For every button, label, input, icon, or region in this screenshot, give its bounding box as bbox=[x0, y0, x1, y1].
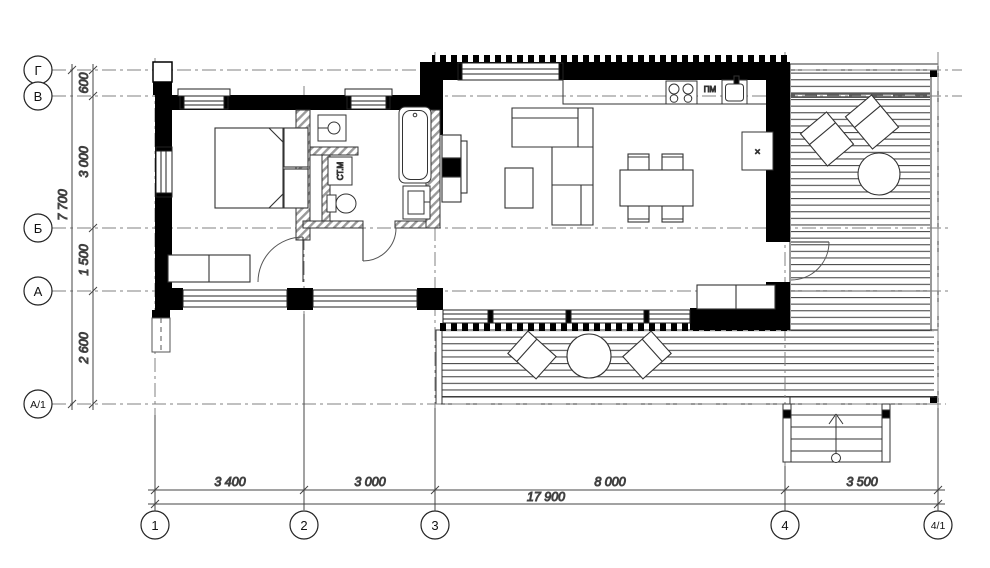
bedroom-furniture bbox=[168, 128, 308, 282]
round-table bbox=[567, 334, 611, 378]
dim-3000-bottom: 3 000 bbox=[354, 475, 385, 489]
dim-3500: 3 500 bbox=[846, 475, 877, 489]
bathroom-fixtures: СТ.М bbox=[318, 107, 431, 219]
column-base bbox=[152, 310, 170, 352]
glazing-south-living bbox=[443, 310, 690, 323]
dimensions-left: 600 3 000 1 500 2 600 7 700 bbox=[56, 64, 97, 410]
axis-label-a1: А/1 bbox=[30, 399, 46, 411]
dim-8000: 8 000 bbox=[594, 475, 625, 489]
tv-unit bbox=[442, 135, 467, 202]
partition-bath-bottom-left bbox=[303, 221, 363, 228]
axis-label-a: А bbox=[34, 284, 43, 299]
dishwasher-label: ПМ bbox=[704, 85, 717, 94]
dim-1500: 1 500 bbox=[77, 244, 91, 275]
wall-pier-axis2 bbox=[287, 288, 313, 310]
doors bbox=[258, 228, 829, 282]
shower-tray bbox=[403, 186, 430, 219]
toilet bbox=[327, 194, 356, 213]
fridge-mark: × bbox=[755, 147, 761, 158]
nightstand bbox=[284, 128, 308, 167]
living-furniture bbox=[442, 108, 775, 309]
dim-2600: 2 600 bbox=[77, 332, 91, 364]
dining-set bbox=[620, 154, 693, 222]
axis-label-3: 3 bbox=[431, 518, 438, 533]
dim-3000-left: 3 000 bbox=[77, 146, 91, 177]
dim-17900: 17 900 bbox=[527, 490, 565, 504]
round-table bbox=[858, 153, 900, 195]
dim-3400: 3 400 bbox=[214, 475, 245, 489]
bottom-deck bbox=[436, 330, 938, 404]
axis-markers-bottom: 1 2 3 4 4/1 bbox=[141, 511, 952, 539]
dim-600: 600 bbox=[77, 73, 91, 94]
window-bedroom-north-1 bbox=[180, 96, 228, 109]
stairs bbox=[783, 404, 890, 463]
axis-label-g: Г bbox=[34, 63, 41, 78]
washing-machine: СТ.М bbox=[328, 157, 352, 185]
kitchen-sink bbox=[722, 76, 747, 104]
door-bathroom bbox=[363, 228, 396, 261]
floor-plan-drawing: СТ.М ПМ × bbox=[0, 0, 990, 568]
partition-bath-top bbox=[310, 147, 358, 155]
window-sill bbox=[178, 89, 230, 96]
axis-label-v: В bbox=[34, 89, 43, 104]
axis-label-2: 2 bbox=[300, 518, 307, 533]
bathtub bbox=[399, 107, 431, 183]
coffee-table bbox=[505, 168, 533, 208]
fridge: × bbox=[742, 132, 773, 170]
dim-7700: 7 700 bbox=[56, 189, 70, 220]
axis-label-b: Б bbox=[34, 221, 43, 236]
axis-markers-left: Г В Б А А/1 bbox=[24, 56, 52, 418]
floor-plan-canvas: СТ.М ПМ × bbox=[0, 0, 990, 568]
stove-icon bbox=[666, 81, 697, 104]
wall-pier-axis3 bbox=[417, 288, 443, 310]
window-living-north bbox=[458, 63, 563, 80]
window-sill bbox=[345, 89, 392, 96]
axis-label-41: 4/1 bbox=[931, 520, 946, 532]
dining-table bbox=[620, 170, 693, 206]
cladding-ticks-bottom bbox=[436, 323, 790, 331]
chimney bbox=[153, 62, 172, 95]
window-bedroom-north-2 bbox=[347, 96, 390, 109]
nightstand bbox=[284, 169, 308, 208]
window-bedroom-west bbox=[156, 147, 172, 197]
deck-post bbox=[930, 70, 937, 77]
cladding-ticks-top bbox=[432, 55, 788, 62]
axis-label-4: 4 bbox=[781, 518, 788, 533]
axis-label-1: 1 bbox=[151, 518, 158, 533]
sideboard-bench bbox=[697, 285, 775, 309]
washbasin bbox=[318, 115, 346, 141]
door-bedroom bbox=[258, 237, 303, 282]
dresser bbox=[168, 255, 250, 282]
washing-machine-label: СТ.М bbox=[336, 161, 345, 180]
wall-pier-axis1 bbox=[155, 288, 183, 310]
bed bbox=[215, 128, 283, 208]
